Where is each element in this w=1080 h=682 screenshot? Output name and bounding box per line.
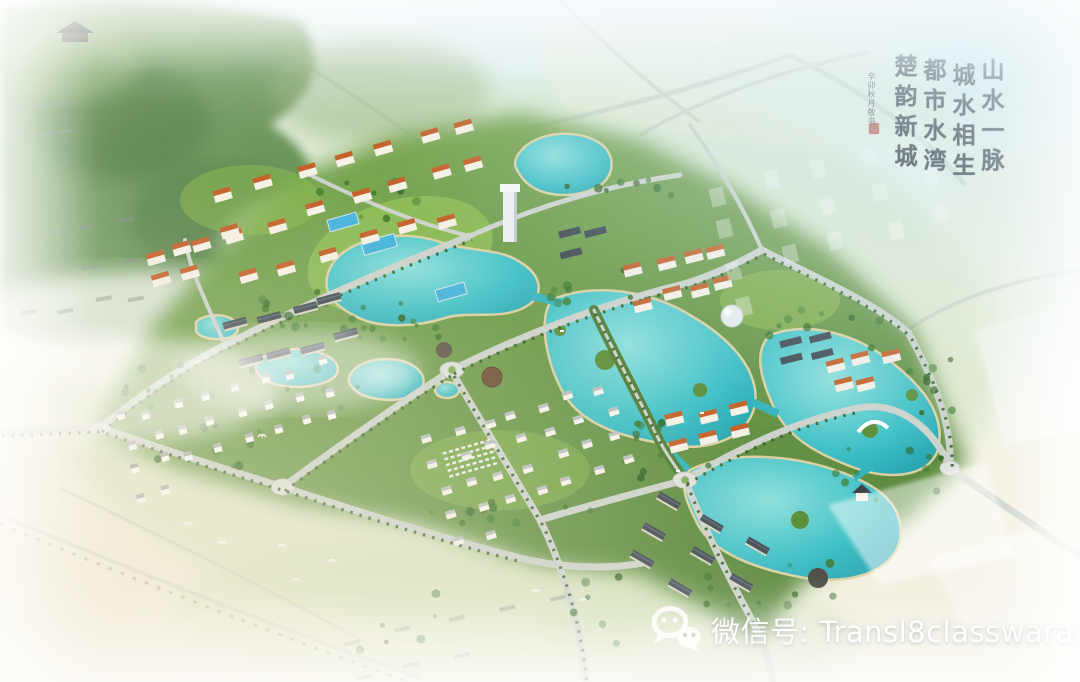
watermark: 微信号: Transl8classwaraid — [652, 606, 1080, 653]
calligraphy-phrase: 山水一脉 — [979, 58, 1002, 183]
calligraphy-signature: 辛卯秋月敬书 — [866, 72, 877, 126]
calligraphy-phrase: 都市水湾 — [921, 58, 944, 183]
dark-pavilion — [808, 568, 828, 588]
calligraphy-title: 山水一脉 城水相生 都市水湾 楚韵新城 — [886, 54, 1002, 183]
amphitheater-dome — [482, 367, 502, 387]
dark-dome — [436, 342, 452, 358]
wechat-icon — [652, 606, 702, 653]
seal-stamp — [869, 123, 879, 134]
calligraphy-phrase: 楚韵新城 — [892, 54, 915, 183]
white-dome — [721, 305, 743, 327]
masterplan-render: 山水一脉 城水相生 都市水湾 楚韵新城 辛卯秋月敬书 微信号: Transl8c… — [0, 0, 1080, 682]
calligraphy-phrase: 城水相生 — [950, 63, 973, 183]
white-tower — [500, 184, 520, 242]
watermark-text: 微信号: Transl8classwaraid — [711, 609, 1080, 651]
